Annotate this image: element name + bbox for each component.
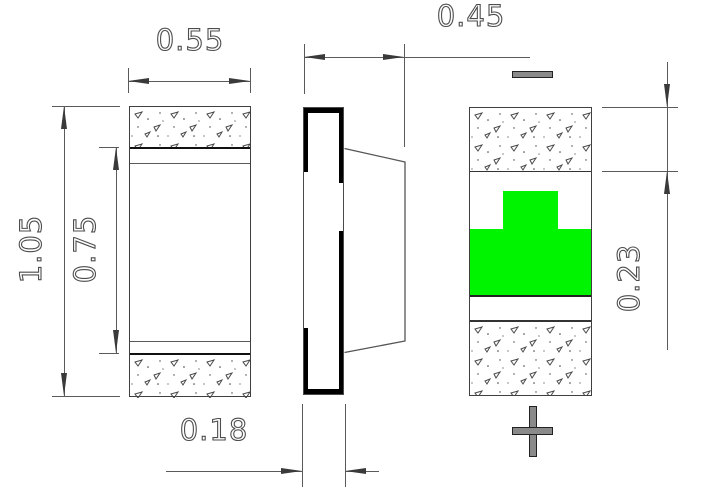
dim-thickness-arrow-left — [281, 468, 302, 474]
dim-depth-label: 0.45 — [425, 2, 517, 31]
back-view — [469, 107, 592, 396]
dim-terminal-label: 0.23 — [615, 233, 643, 323]
dim-total-height-label: 1.05 — [17, 204, 45, 294]
side-right-terminal-upper — [339, 108, 343, 183]
dim-inner-height-label: 0.75 — [71, 204, 99, 294]
dim-depth-arrow-right — [383, 54, 404, 60]
side-right-terminal-lower — [339, 231, 343, 394]
front-lower-feature-line — [130, 341, 250, 342]
dim-depth-ext-left — [304, 44, 305, 94]
side-top-terminal-cap — [304, 108, 343, 113]
dim-front-width-ext-right — [250, 68, 251, 93]
dim-thickness-label: 0.18 — [168, 416, 260, 445]
dim-terminal-arrow-top — [664, 84, 670, 107]
side-left-terminal-upper — [304, 108, 308, 172]
dim-front-width-label: 0.55 — [144, 26, 236, 55]
front-upper-feature-line — [130, 163, 250, 164]
back-bottom-terminal-band — [470, 322, 591, 395]
dim-depth-line — [304, 57, 530, 58]
dim-depth-ext-right — [404, 44, 405, 147]
dim-total-height-line — [64, 106, 65, 396]
dim-inner-height-arrow-bottom — [113, 330, 119, 353]
minus-polarity-icon — [512, 71, 553, 78]
front-bottom-terminal-band — [130, 353, 250, 398]
dim-thickness-ext-left — [302, 404, 303, 487]
dim-total-height-arrow-top — [61, 106, 67, 129]
dim-front-width-arrow-left — [128, 78, 149, 84]
dim-inner-height-line — [116, 147, 117, 353]
dim-thickness-arrow-right — [345, 468, 366, 474]
dim-terminal-arrow-bottom — [664, 171, 670, 194]
back-top-terminal-band — [470, 108, 591, 172]
emitter-chip-area — [470, 229, 591, 297]
dim-total-height-ext-bottom — [52, 396, 120, 397]
dim-front-width-arrow-right — [229, 78, 250, 84]
dim-depth-arrow-left — [304, 54, 325, 60]
front-top-terminal-band — [130, 107, 250, 149]
plus-polarity-icon-horizontal — [512, 427, 553, 435]
side-lens-profile — [344, 148, 407, 354]
dim-thickness-ext-right — [345, 404, 346, 487]
dim-inner-height-ext-bottom — [99, 353, 119, 354]
side-bottom-terminal-cap — [304, 389, 343, 394]
side-left-terminal-lower — [304, 328, 308, 394]
dim-inner-height-arrow-top — [113, 147, 119, 170]
emitter-chip-tab — [503, 191, 558, 230]
front-view — [129, 106, 251, 397]
side-view-body — [303, 107, 344, 395]
led-package-drawing: 0.55 1.05 0.75 0.45 0.18 — [0, 0, 709, 500]
dim-total-height-arrow-bottom — [61, 373, 67, 396]
